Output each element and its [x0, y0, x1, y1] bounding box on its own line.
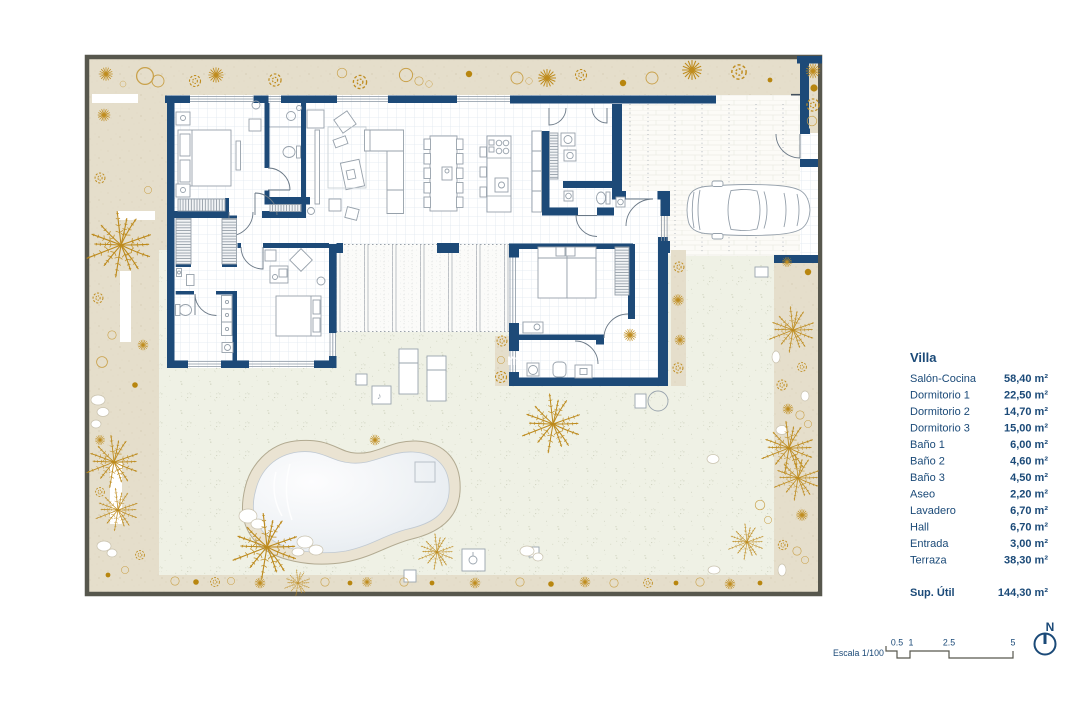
svg-text:Baño 3: Baño 3	[910, 472, 945, 484]
svg-text:Sup. Útil: Sup. Útil	[910, 586, 955, 599]
svg-text:15,00 m²: 15,00 m²	[1004, 423, 1048, 435]
svg-text:Baño 2: Baño 2	[910, 456, 945, 468]
svg-text:Villa: Villa	[910, 350, 937, 365]
svg-text:14,70 m²: 14,70 m²	[1004, 406, 1048, 418]
svg-text:3,00 m²: 3,00 m²	[1010, 538, 1048, 550]
svg-text:5: 5	[1011, 638, 1016, 648]
svg-text:6,00 m²: 6,00 m²	[1010, 439, 1048, 451]
svg-text:Lavadero: Lavadero	[910, 505, 956, 517]
svg-text:58,40 m²: 58,40 m²	[1004, 373, 1048, 385]
svg-text:Hall: Hall	[910, 522, 929, 534]
svg-text:Dormitorio 2: Dormitorio 2	[910, 406, 970, 418]
svg-text:6,70 m²: 6,70 m²	[1010, 522, 1048, 534]
svg-text:m: m	[507, 352, 521, 369]
svg-text:♪: ♪	[377, 391, 382, 401]
svg-text:38,30 m²: 38,30 m²	[1004, 555, 1048, 567]
svg-text:Entrada: Entrada	[910, 538, 949, 550]
svg-text:4,50 m²: 4,50 m²	[1010, 472, 1048, 484]
svg-text:Dormitorio 1: Dormitorio 1	[910, 390, 970, 402]
svg-text:4,60 m²: 4,60 m²	[1010, 456, 1048, 468]
svg-text:0.5: 0.5	[891, 638, 903, 648]
svg-text:Dormitorio 3: Dormitorio 3	[910, 423, 970, 435]
svg-text:Baño 1: Baño 1	[910, 439, 945, 451]
svg-text:Escala 1/100: Escala 1/100	[833, 648, 884, 658]
svg-text:1: 1	[909, 638, 914, 648]
svg-text:2,20 m²: 2,20 m²	[1010, 489, 1048, 501]
svg-text:144,30 m²: 144,30 m²	[998, 587, 1048, 599]
svg-text:N: N	[1046, 620, 1055, 634]
svg-text:6,70 m²: 6,70 m²	[1010, 505, 1048, 517]
svg-text:2.5: 2.5	[943, 638, 955, 648]
svg-text:Salón-Cocina: Salón-Cocina	[910, 373, 977, 385]
svg-text:Terraza: Terraza	[910, 555, 948, 567]
svg-text:Aseo: Aseo	[910, 489, 935, 501]
svg-text:22,50 m²: 22,50 m²	[1004, 390, 1048, 402]
